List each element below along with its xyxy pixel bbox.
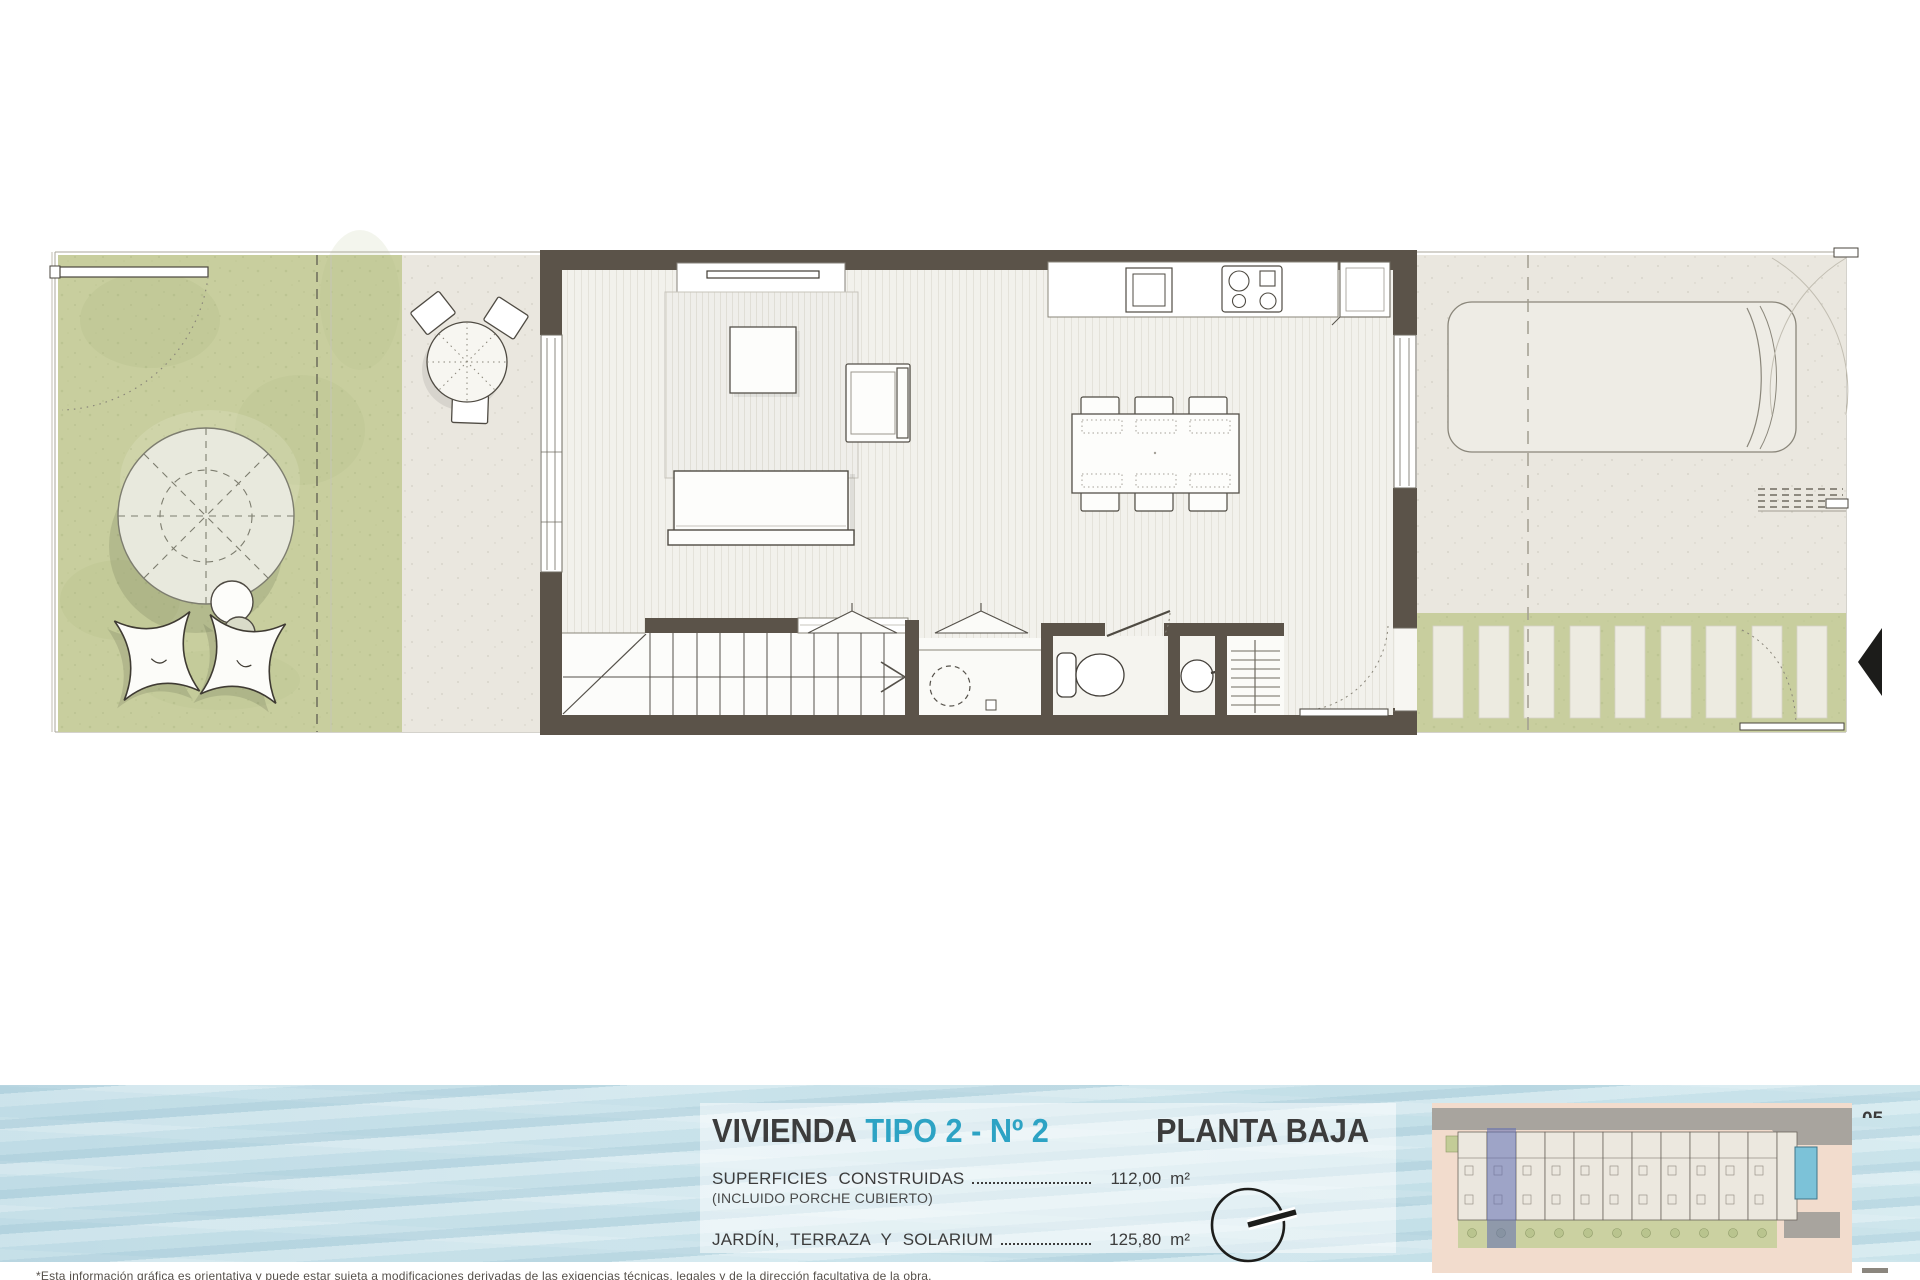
title-vivienda: VIVIENDA [712, 1112, 857, 1149]
tv-unit [677, 263, 845, 292]
rear-gate [1834, 248, 1858, 257]
shelf-unit [1227, 636, 1284, 715]
living-room-window [541, 335, 562, 572]
fridge [1332, 262, 1390, 325]
stepping-stones [1433, 626, 1827, 718]
surface-value: 112,00 [1097, 1169, 1161, 1189]
site-map [1432, 1103, 1852, 1273]
site-unit [1632, 1132, 1661, 1220]
laundry-area [919, 638, 1041, 715]
house [540, 250, 1417, 735]
site-unit [1458, 1132, 1487, 1220]
dotted-leader [972, 1182, 1091, 1184]
sofa [668, 471, 855, 545]
site-road [1432, 1108, 1852, 1130]
tv [707, 271, 819, 278]
site-tree [1555, 1229, 1564, 1238]
surface-row-built: SUPERFICIES CONSTRUIDAS 112,00 m² [712, 1169, 1190, 1189]
site-pool [1795, 1147, 1817, 1199]
surface-label: SUPERFICIES CONSTRUIDAS [712, 1169, 964, 1189]
toilet [1057, 653, 1124, 697]
site-tree [1584, 1229, 1593, 1238]
site-tree [1671, 1229, 1680, 1238]
coffee-table [730, 327, 800, 397]
site-tree [1642, 1229, 1651, 1238]
site-unit [1690, 1132, 1719, 1220]
site-tree [1526, 1229, 1535, 1238]
site-highlighted-unit [1487, 1128, 1516, 1248]
plan-sheet: VIVIENDATIPO 2 - Nº 2 PLANTA BAJA SUPERF… [0, 0, 1920, 1280]
surface-note: (INCLUIDO PORCHE CUBIERTO) [712, 1190, 1190, 1206]
north-compass-icon [1200, 1177, 1310, 1273]
site-tree [1729, 1229, 1738, 1238]
dining-window [1394, 335, 1416, 488]
terrace-area [402, 255, 540, 732]
site-tree [1468, 1229, 1477, 1238]
site-tree [1700, 1229, 1709, 1238]
page-number: 05 [1862, 1110, 1902, 1118]
site-unit [1516, 1132, 1545, 1220]
site-tree [1613, 1229, 1622, 1238]
site-unit [1661, 1132, 1690, 1220]
site-end-building [1777, 1132, 1797, 1220]
dining-set [1072, 397, 1239, 511]
site-unit [1748, 1132, 1777, 1220]
sheet-title: VIVIENDATIPO 2 - Nº 2 [712, 1112, 1049, 1150]
entrance-arrow-icon [1858, 628, 1882, 696]
garden-area [50, 230, 402, 732]
car [1448, 302, 1796, 452]
disclaimer-text: *Esta información gráfica es orientativa… [36, 1269, 932, 1280]
surface-row-garden: JARDÍN, TERRAZA Y SOLARIUM 125,80 m² [712, 1230, 1190, 1250]
armchair [846, 364, 910, 442]
side-gate [1826, 499, 1848, 508]
surface-unit: m² [1170, 1169, 1190, 1189]
site-unit [1603, 1132, 1632, 1220]
dotted-leader [1001, 1243, 1091, 1245]
sink [1126, 268, 1172, 312]
site-unit [1719, 1132, 1748, 1220]
floor-plan-drawing [0, 0, 1920, 1080]
surface-label: JARDÍN, TERRAZA Y SOLARIUM [712, 1230, 993, 1250]
floor-label: PLANTA BAJA [1156, 1112, 1369, 1150]
surface-unit: m² [1170, 1230, 1190, 1250]
site-tree [1758, 1229, 1767, 1238]
cooktop [1222, 266, 1282, 312]
site-unit [1574, 1132, 1603, 1220]
surface-table: SUPERFICIES CONSTRUIDAS 112,00 m² (INCLU… [712, 1169, 1190, 1250]
title-type: TIPO 2 - Nº 2 [865, 1112, 1048, 1149]
site-unit [1545, 1132, 1574, 1220]
garden-side-table [211, 581, 253, 623]
sheet-footer: VIVIENDATIPO 2 - Nº 2 PLANTA BAJA SUPERF… [0, 1085, 1920, 1280]
surface-value: 125,80 [1097, 1230, 1161, 1250]
corner-mark [1862, 1268, 1888, 1273]
walkway-door [1740, 723, 1844, 730]
driveway-area [1417, 248, 1882, 732]
